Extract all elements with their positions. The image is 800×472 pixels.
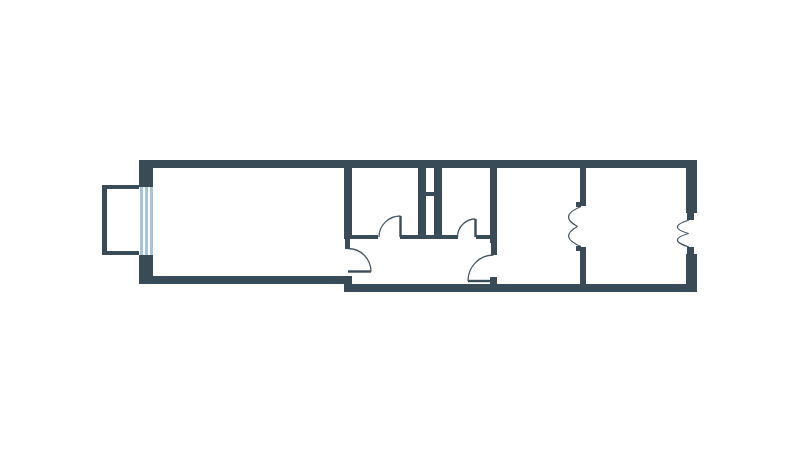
outer-wall-top [139, 160, 697, 168]
balcony-wall-top [102, 185, 140, 189]
entry-door-jamb-top [687, 213, 694, 220]
shaft-divider [426, 192, 434, 196]
outer-wall-right-lower [686, 254, 697, 292]
balcony-wall-left [102, 185, 107, 255]
corridor-wall-segment-b [400, 235, 458, 239]
shaft-wall-right [434, 168, 442, 238]
room-right-room [586, 168, 686, 284]
balcony-window-frame-line-3 [150, 187, 153, 255]
partition-corridor-hinge-nub [490, 277, 497, 284]
outer-wall-right-upper [686, 160, 697, 213]
partition-living-room [344, 168, 352, 239]
entry-door-jamb-bottom [687, 247, 694, 254]
room-balcony [107, 189, 139, 251]
room-living-room [153, 168, 344, 276]
double-door-nub-bottom [576, 246, 581, 251]
partition-corridor-jamb [491, 243, 497, 255]
balcony-window-frame-line-2 [145, 187, 148, 255]
corridor-wall-segment-a [352, 235, 378, 239]
outer-wall-left-below-window [139, 255, 153, 276]
partition-rooms-lower [580, 247, 586, 284]
outer-wall-bottom-right [344, 284, 697, 292]
partition-living-room-jamb [345, 239, 350, 249]
room-center-room [497, 168, 580, 284]
balcony-wall-bottom [102, 251, 140, 255]
outer-wall-left-above-window [139, 168, 153, 187]
partition-corridor-upper [490, 168, 497, 243]
floorplan-canvas [0, 0, 800, 472]
room-small-room-left [352, 168, 418, 235]
shaft-wall-left [418, 168, 426, 238]
room-corridor [352, 239, 490, 284]
outer-wall-bottom-left [139, 276, 352, 284]
partition-rooms-upper [580, 168, 586, 206]
double-door-nub-top [576, 202, 581, 207]
balcony-window-frame-line-1 [140, 187, 143, 255]
room-small-room-right [442, 168, 490, 235]
corridor-wall-segment-c [476, 235, 490, 239]
